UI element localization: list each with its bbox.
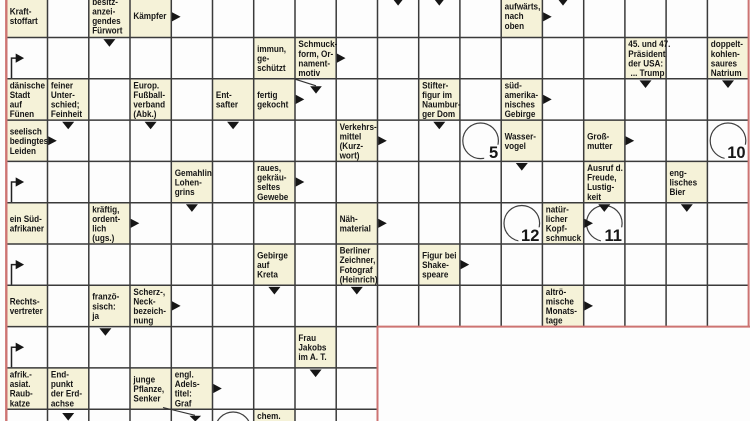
svg-text:ein Süd-afrikaner: ein Süd-afrikaner [10,213,45,233]
svg-text:10: 10 [727,144,745,162]
svg-text:besitz-anzei-gendesFürwort: besitz-anzei-gendesFürwort [92,0,122,36]
svg-text:afrik.-asiat.Raub-katze: afrik.-asiat.Raub-katze [10,369,33,409]
svg-text:doppelt-kohlen-sauresNatrium: doppelt-kohlen-sauresNatrium [711,38,743,78]
svg-text:11: 11 [604,227,621,245]
svg-text:12: 12 [521,227,539,245]
svg-text:Kämpfer: Kämpfer [133,11,167,22]
svg-text:Groß-mutter: Groß-mutter [587,131,613,151]
svg-text:45. und 47.Präsidentder USA: .: 45. und 47.Präsidentder USA: ... Trump [628,38,670,78]
svg-text:Rechts-vertreter: Rechts-vertreter [10,296,44,316]
svg-text:5: 5 [489,144,498,162]
